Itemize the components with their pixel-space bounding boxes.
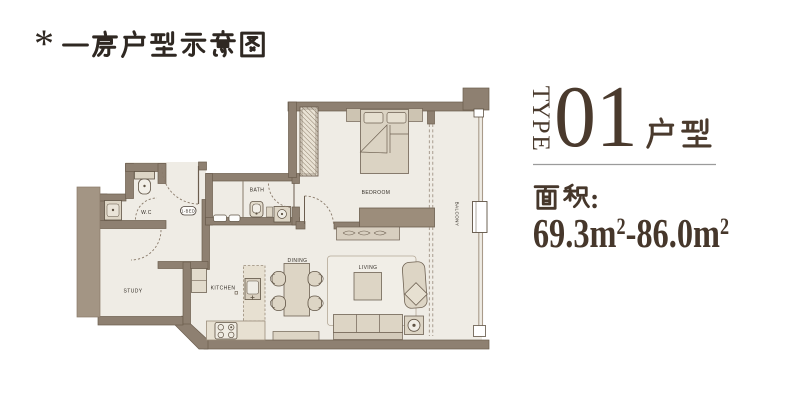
- svg-text:69.3m2-86.0m2: 69.3m2-86.0m2: [533, 210, 729, 255]
- svg-text:LIVING: LIVING: [359, 265, 378, 271]
- svg-text:01: 01: [554, 68, 638, 165]
- svg-text:STUDY: STUDY: [124, 288, 143, 294]
- svg-text:DINING: DINING: [288, 258, 308, 264]
- svg-text:KITCHEN: KITCHEN: [211, 286, 236, 292]
- svg-text:P: P: [527, 119, 556, 133]
- svg-text:*: *: [34, 21, 54, 66]
- svg-text:E: E: [527, 135, 556, 151]
- svg-text:W.C: W.C: [141, 210, 152, 216]
- svg-text:1-BED: 1-BED: [181, 209, 195, 214]
- svg-text:Y: Y: [527, 101, 556, 119]
- svg-text:T: T: [527, 86, 556, 102]
- svg-text:BEDROOM: BEDROOM: [362, 190, 391, 196]
- svg-text:BATH: BATH: [250, 188, 265, 194]
- svg-text:BALCONY: BALCONY: [455, 202, 460, 227]
